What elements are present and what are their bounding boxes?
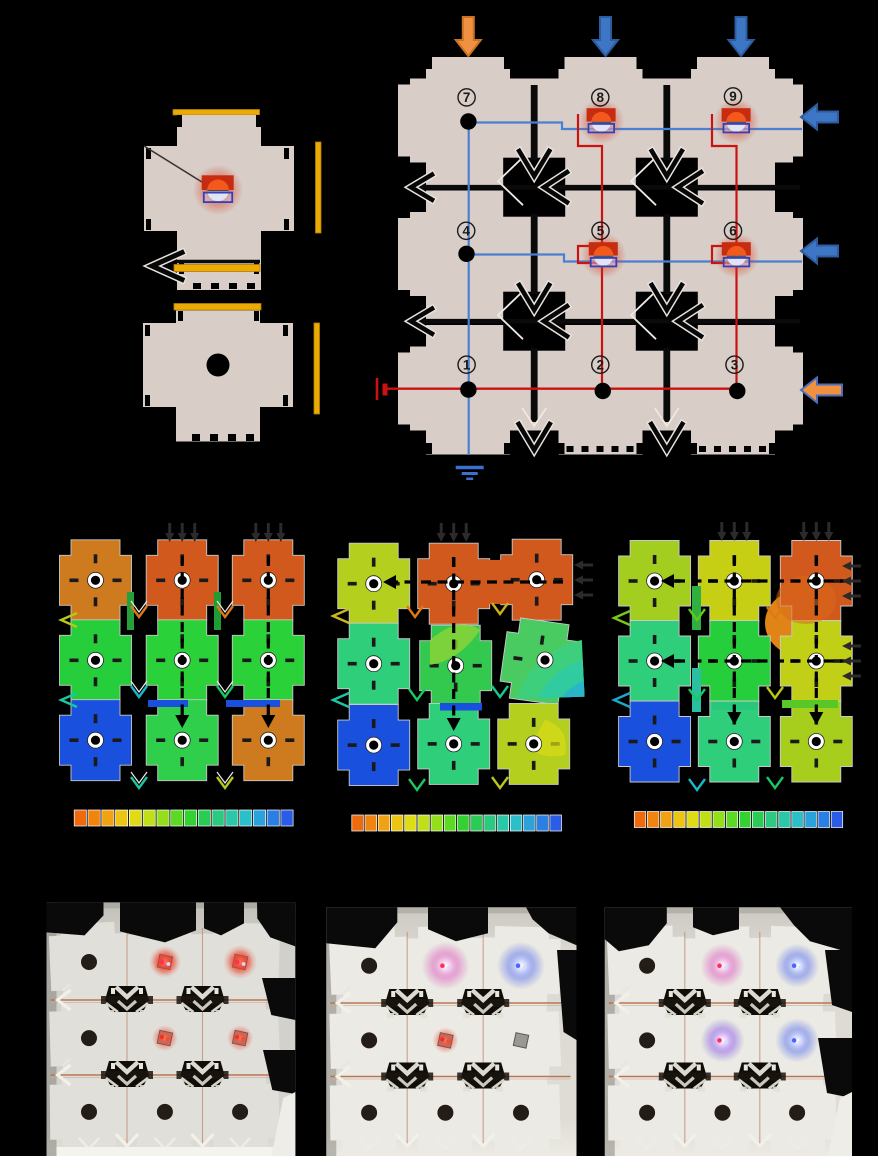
svg-text:1: 1 <box>463 357 471 372</box>
svg-text:7: 7 <box>463 90 471 105</box>
svg-text:9: 9 <box>729 89 737 104</box>
svg-text:6: 6 <box>729 223 737 238</box>
svg-text:2: 2 <box>597 357 605 372</box>
svg-text:4: 4 <box>462 223 470 238</box>
svg-text:8: 8 <box>597 90 605 105</box>
svg-text:5: 5 <box>597 223 605 238</box>
svg-text:3: 3 <box>731 357 739 372</box>
